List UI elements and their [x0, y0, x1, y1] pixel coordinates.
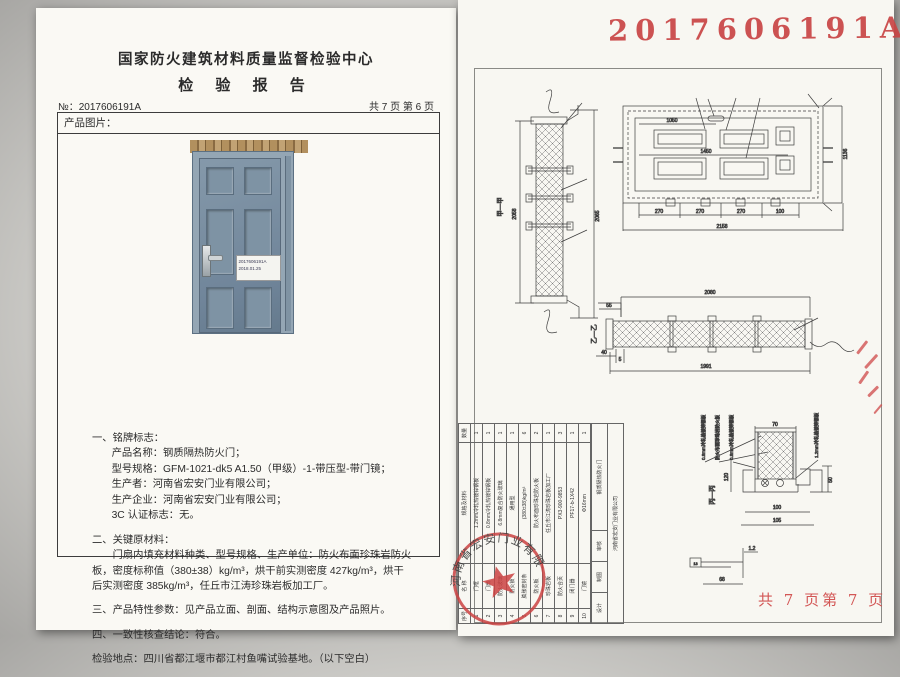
- title-block-cell: 制图: [592, 562, 608, 593]
- dim-text: 1136: [843, 148, 849, 159]
- dim-text: 2065: [595, 210, 601, 221]
- report-body-box: 产品图片： 2017606191A 2018.01.25: [57, 112, 440, 557]
- material-label: 0.8mm冷轧热镀锌钢板: [728, 414, 735, 460]
- table-cell: 3: [555, 424, 567, 443]
- table-cell: 9: [567, 609, 579, 624]
- section-label-bing: 丙—丙: [708, 485, 716, 505]
- dim-text: 68: [719, 577, 725, 583]
- horizontal-section-drawing: 2080 55 40 5: [590, 290, 854, 374]
- dim-text: 13: [693, 562, 697, 566]
- door-panel: [206, 287, 234, 329]
- product-photo: 2017606191A 2018.01.25: [190, 140, 308, 332]
- report-meta: №：2017606191A 共 7 页 第 6 页: [58, 98, 434, 113]
- seal-star: [479, 562, 519, 599]
- nameplate-model: 型号规格：GFM-1021-dk5 A1.50（甲级）-1-带压型-带门镜；: [112, 462, 413, 477]
- sample-label: 2017606191A 2018.01.25: [236, 255, 281, 281]
- dim-text: 70: [772, 422, 778, 428]
- column-header: 数量: [459, 424, 471, 443]
- dim-text: 2080: [704, 290, 715, 296]
- sample-label-number: 2017606191A: [239, 258, 279, 265]
- table-row: 10门镜Φ16mm1: [579, 424, 591, 624]
- drawing-page: 2017606191A: [458, 0, 894, 636]
- table-cell: 2: [531, 424, 543, 443]
- dim-text: 270: [696, 209, 705, 215]
- inspection-location: 检验地点：四川省都江堰市都江村鱼嘴试验基地。（以下空白）: [92, 652, 413, 667]
- table-cell: 1: [543, 424, 555, 443]
- door-lock-plate: [202, 245, 211, 277]
- table-cell: 1: [579, 424, 591, 443]
- table-cell: 1: [483, 424, 495, 443]
- dim-text: 100: [776, 209, 785, 215]
- table-cell: 6: [519, 424, 531, 443]
- material-label: 1.2mm冷轧热镀锌钢板: [813, 412, 820, 458]
- dim-text: 2058: [512, 208, 518, 219]
- title-block-company: 河南省宏安门业有限公司: [608, 424, 624, 624]
- dim-text: 100: [773, 505, 782, 511]
- table-cell: Φ16mm: [579, 443, 591, 564]
- sample-label-date: 2018.01.25: [239, 265, 279, 272]
- dim-text: 270: [655, 209, 664, 215]
- door-hinge-edge: [285, 156, 291, 331]
- section3: 三、产品特性参数：见产品立面、剖面、结构示意图及产品照片。: [92, 603, 413, 618]
- dim-text: 1050: [666, 118, 677, 124]
- center-name: 国家防火建筑材料质量监督检验中心: [36, 48, 456, 69]
- section-label-yi: 乙—乙: [590, 324, 598, 344]
- dim-text: 120: [724, 473, 730, 482]
- vertical-section-drawing: 2058 2065 甲—甲: [496, 90, 601, 333]
- nameplate-3c: 3C 认证标志：无。: [112, 508, 413, 523]
- door-leaf: 2017606191A 2018.01.25: [199, 158, 281, 333]
- nameplate-producer: 生产者：河南省宏安门业有限公司；: [112, 477, 413, 492]
- title-block-drawing-name: 钢质隔热防火门: [592, 424, 608, 531]
- nameplate-product-name: 产品名称：钢质隔热防火门；: [112, 446, 413, 461]
- dim-text: 40: [601, 350, 607, 356]
- leaf-detail-drawing: 0.8mm冷轧热镀锌钢板 防火布面珍珠岩防火板 0.8mm冷轧热镀锌钢板 1.2…: [690, 412, 834, 584]
- table-cell: PX3-900-9853: [555, 443, 567, 564]
- material-label: 防火布面珍珠岩防火板: [714, 415, 721, 460]
- table-cell: 1: [507, 424, 519, 443]
- table-cell: 10: [579, 609, 591, 624]
- product-image-label: 产品图片：: [58, 113, 439, 134]
- dim-text: 105: [773, 518, 782, 524]
- table-cell: PF17-b-1X42: [567, 443, 579, 564]
- dim-text: 270: [737, 209, 746, 215]
- dim-text: 1450: [700, 149, 711, 155]
- drawing-page-indicator: 共 7 页第 7 页: [758, 589, 886, 610]
- report-number: №：2017606191A: [58, 98, 141, 113]
- report-page: 国家防火建筑材料质量监督检验中心 检 验 报 告 №：2017606191A 共…: [36, 8, 456, 630]
- report-title: 检 验 报 告: [36, 74, 456, 95]
- title-block-cell: 审核: [592, 531, 608, 562]
- dim-text: 1.2: [749, 546, 756, 552]
- table-cell: 1: [567, 424, 579, 443]
- dim-text: 1991: [700, 364, 711, 370]
- dim-text: 50: [828, 477, 834, 483]
- material-label: 0.8mm冷轧热镀锌钢板: [700, 414, 707, 460]
- table-cell: 1: [495, 424, 507, 443]
- door-elevation-drawing: 1050 1450 270 270 270 100 2158 1136: [613, 94, 849, 231]
- dim-text: 55: [606, 303, 612, 309]
- table-cell: 门镜: [579, 564, 591, 609]
- door-panel: [244, 287, 272, 329]
- table-cell: 1: [471, 424, 483, 443]
- title-block: 设计 制图 审核 钢质隔热防火门 河南省宏安门业有限公司: [591, 423, 624, 624]
- dim-text: 2158: [716, 224, 727, 230]
- table-row: 河南省宏安门业有限公司: [608, 424, 624, 624]
- door-handle: [208, 255, 223, 261]
- door-panel: [206, 167, 234, 195]
- nameplate-enterprise: 生产企业：河南省宏安门业有限公司；: [112, 493, 413, 508]
- dim-text: 5: [619, 357, 622, 363]
- page-indicator: 共 7 页 第 6 页: [369, 98, 434, 113]
- section-label-jia: 甲—甲: [496, 197, 504, 217]
- section2-title: 二、关键原材料：: [92, 533, 413, 548]
- table-row: 设计 制图 审核 钢质隔热防火门: [592, 424, 608, 624]
- section2-body: 门扇内填充材料种类、型号规格、生产单位：防火布面珍珠岩防火板，密度标称值（380…: [92, 548, 413, 594]
- door-panel: [244, 167, 272, 195]
- section1-title: 一、铭牌标志：: [92, 431, 413, 446]
- report-text: 一、铭牌标志： 产品名称：钢质隔热防火门； 型号规格：GFM-1021-dk5 …: [92, 431, 413, 677]
- door-frame: 2017606191A 2018.01.25: [192, 151, 294, 334]
- table-cell: 闭门器: [567, 564, 579, 609]
- table-row: 9闭门器PF17-b-1X421: [567, 424, 579, 624]
- title-block-cell: 设计: [592, 593, 608, 624]
